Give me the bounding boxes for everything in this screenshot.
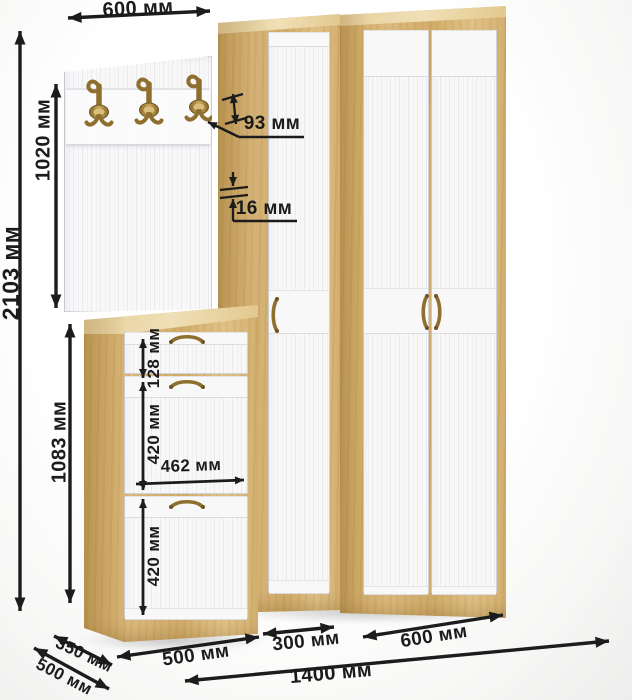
arrow-panel-width	[68, 11, 210, 18]
right-door-handle-icon	[433, 293, 443, 331]
shoe-flap-lower	[124, 496, 248, 618]
dim-panel-width: 600 мм	[102, 0, 174, 22]
dim-total-width: 1400 мм	[289, 659, 373, 689]
dim-narrow-wardrobe-width: 300 мм	[271, 628, 340, 657]
wide-wardrobe-door-right	[431, 30, 497, 593]
dim-wide-wardrobe-width: 600 мм	[399, 621, 469, 653]
dim-total-height: 2103 мм	[0, 226, 25, 320]
door-bottom-rail	[269, 580, 329, 594]
wide-wardrobe	[340, 2, 506, 618]
wide-wardrobe-top	[340, 2, 506, 26]
narrow-wardrobe-door	[268, 32, 330, 592]
shoe-cabinet-drawer	[124, 332, 248, 374]
coat-hook-icon	[137, 80, 162, 123]
wide-wardrobe-door-left	[363, 30, 429, 593]
dim-panel-height: 1020 мм	[33, 99, 56, 181]
door-top-rail	[364, 30, 428, 77]
door-mid-rail	[364, 288, 428, 334]
lower-flap-handle-icon	[168, 498, 206, 510]
dim-total-depth: 500 мм	[32, 654, 95, 699]
door-bottom-rail	[432, 586, 496, 595]
flap-bottom-rail	[125, 608, 247, 620]
arrow-total-depth	[34, 648, 109, 689]
door-top-rail	[269, 32, 329, 47]
narrow-door-handle-icon	[270, 296, 280, 334]
coat-hook-icon	[187, 77, 212, 120]
furniture-dimension-diagram: 600 мм 2103 мм 1020 мм 1083 мм 93 мм 16 …	[0, 0, 632, 700]
door-bottom-rail	[364, 586, 428, 595]
coat-rack-panel	[64, 56, 212, 312]
door-top-rail	[432, 30, 496, 77]
left-door-handle-icon	[420, 293, 430, 331]
shoe-cabinet	[84, 304, 258, 642]
dim-shoe-cabinet-height: 1083 мм	[49, 401, 72, 483]
upper-flap-handle-icon	[168, 378, 206, 390]
arrow-narrow-wardrobe-width	[263, 627, 334, 634]
coat-hook-icon	[87, 82, 112, 125]
coat-hooks	[64, 56, 212, 312]
drawer-handle-icon	[168, 333, 206, 345]
shoe-flap-upper	[124, 376, 248, 494]
